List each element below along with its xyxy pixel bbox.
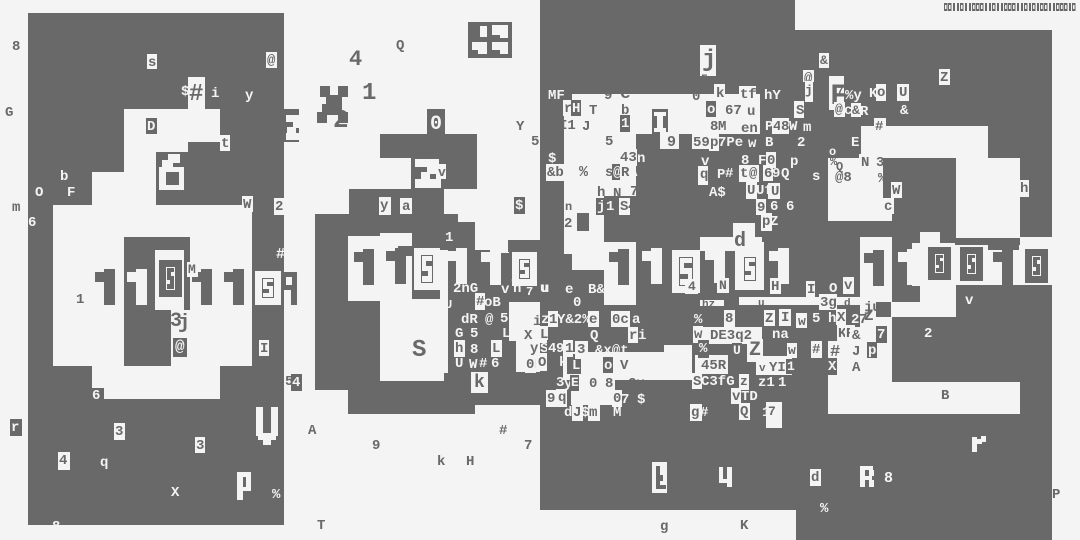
svg-text:9: 9 (372, 438, 380, 454)
svg-text:N: N (213, 249, 221, 265)
svg-text:8: 8 (725, 311, 733, 327)
svg-text:k: k (437, 454, 445, 470)
svg-text:d: d (811, 470, 819, 486)
svg-text:1: 1 (362, 80, 376, 107)
svg-text:B: B (941, 388, 950, 404)
svg-text:#: # (499, 423, 507, 439)
svg-text:2: 2 (333, 105, 349, 135)
svg-text:d: d (734, 230, 746, 253)
svg-text:a: a (402, 199, 411, 215)
svg-text:E: E (571, 375, 579, 390)
svg-text:B&: B& (588, 282, 605, 298)
svg-text:7: 7 (837, 86, 844, 98)
svg-text:W: W (892, 183, 901, 199)
svg-text:A: A (308, 423, 317, 439)
svg-text:$: $ (515, 198, 523, 214)
svg-text:%: % (694, 312, 703, 328)
svg-text:v: v (438, 165, 446, 180)
svg-text:@: @ (267, 53, 276, 69)
svg-text:5: 5 (470, 326, 478, 342)
svg-text:u: u (540, 281, 548, 297)
svg-text:7: 7 (877, 327, 885, 343)
svg-text:v: v (732, 389, 741, 405)
svg-text:k: k (716, 86, 724, 102)
svg-text:8: 8 (605, 376, 613, 392)
svg-text:7: 7 (524, 438, 532, 454)
svg-text:2: 2 (797, 135, 805, 151)
svg-text:M: M (613, 405, 621, 421)
svg-text:Y: Y (516, 119, 525, 135)
svg-text:#: # (276, 246, 285, 263)
svg-text:&: & (852, 328, 861, 344)
svg-text:e: e (620, 84, 631, 104)
svg-text:59: 59 (693, 135, 710, 151)
svg-text:X: X (837, 310, 846, 326)
svg-text:p: p (790, 154, 798, 170)
svg-text:G: G (455, 326, 463, 342)
svg-text:Q: Q (740, 404, 748, 420)
svg-text:v: v (965, 293, 974, 309)
svg-text:z1: z1 (758, 375, 775, 391)
svg-text:43: 43 (620, 150, 637, 166)
svg-text:I: I (260, 341, 268, 357)
svg-text:DE3q2: DE3q2 (710, 328, 752, 344)
svg-text:MF: MF (548, 88, 565, 104)
svg-text:&x@t: &x@t (595, 343, 629, 359)
svg-text:1: 1 (76, 292, 84, 308)
svg-text:3: 3 (196, 438, 204, 454)
svg-text:R: R (860, 104, 869, 120)
svg-text:Y&2%: Y&2% (557, 312, 591, 328)
svg-text:d: d (844, 298, 851, 310)
svg-text:O: O (538, 355, 546, 371)
svg-text:E: E (851, 135, 859, 151)
svg-text:j: j (597, 199, 605, 215)
svg-text:9: 9 (667, 134, 676, 151)
svg-text:#: # (479, 356, 487, 372)
svg-text:w: w (798, 314, 806, 329)
svg-text:5: 5 (531, 134, 539, 150)
svg-text:Z: Z (940, 70, 948, 86)
svg-text:ju: ju (864, 300, 881, 316)
svg-text:5: 5 (500, 311, 508, 327)
svg-text:1: 1 (606, 199, 614, 215)
svg-text:6: 6 (786, 199, 794, 215)
svg-text:m: m (803, 120, 811, 136)
svg-text:t: t (221, 136, 229, 152)
svg-text:c: c (565, 152, 573, 168)
svg-text:4: 4 (628, 199, 636, 215)
svg-text:i: i (637, 200, 645, 216)
svg-text:0: 0 (430, 113, 442, 136)
svg-text:W: W (469, 357, 478, 373)
svg-text:7Pe: 7Pe (718, 135, 743, 151)
svg-text:0: 0 (589, 376, 597, 392)
svg-text:%: % (878, 171, 887, 187)
svg-text:g: g (660, 519, 668, 535)
svg-text:&: & (900, 103, 909, 119)
svg-text:G: G (5, 105, 13, 121)
svg-text:1: 1 (621, 116, 629, 132)
svg-text:p: p (868, 343, 876, 359)
svg-text:7: 7 (630, 184, 638, 200)
svg-text:en: en (741, 121, 758, 137)
svg-text:X: X (171, 485, 180, 501)
svg-text:j: j (178, 312, 190, 335)
svg-text:&: & (820, 53, 828, 68)
svg-text:%: % (708, 342, 716, 356)
svg-text:r: r (629, 328, 637, 344)
svg-text:0: 0 (692, 89, 700, 105)
svg-text:L: L (572, 358, 580, 374)
svg-text:hz: hz (702, 299, 715, 311)
svg-text:8: 8 (52, 519, 60, 535)
svg-text:Cx: Cx (628, 376, 645, 392)
svg-text:m: m (12, 200, 20, 216)
svg-text:z: z (740, 374, 748, 389)
svg-text:g: g (691, 405, 699, 421)
svg-text:r: r (716, 217, 724, 233)
svg-text:U: U (899, 85, 907, 101)
svg-text:I: I (807, 282, 815, 298)
svg-text:U: U (771, 184, 779, 200)
svg-text:v: v (759, 363, 766, 375)
svg-text:%y: %y (845, 88, 862, 104)
svg-text:%: % (699, 341, 708, 357)
svg-text:2: 2 (275, 199, 283, 215)
svg-text:s: s (812, 169, 820, 185)
svg-text:b: b (60, 169, 68, 185)
svg-text:S: S (412, 337, 426, 364)
svg-text:D: D (147, 119, 155, 135)
svg-text:n: n (637, 151, 645, 167)
svg-text:6: 6 (491, 356, 499, 372)
svg-text:4: 4 (59, 453, 67, 469)
svg-text:C3fG: C3fG (701, 374, 735, 390)
svg-text:t: t (740, 166, 748, 182)
svg-text:': ' (521, 278, 528, 292)
svg-text:j: j (702, 47, 716, 74)
svg-text:5: 5 (605, 134, 613, 150)
svg-text:X: X (828, 359, 837, 375)
svg-text:v: v (844, 278, 853, 294)
svg-text:s: s (148, 55, 156, 71)
svg-text:L: L (492, 341, 500, 357)
svg-text:i: i (638, 328, 646, 344)
svg-text:S: S (796, 103, 804, 119)
svg-text:M: M (718, 119, 726, 135)
svg-text:O: O (35, 185, 43, 201)
svg-text:N: N (861, 155, 869, 171)
svg-text:2nG: 2nG (453, 281, 478, 297)
svg-text:45R: 45R (701, 358, 727, 374)
svg-text:d: d (564, 405, 572, 421)
svg-text:3g: 3g (820, 295, 837, 311)
svg-text:1: 1 (778, 375, 786, 391)
svg-text:o: o (707, 102, 715, 118)
svg-text:Z: Z (765, 311, 773, 327)
svg-text:8: 8 (470, 342, 478, 358)
svg-text:M: M (188, 262, 196, 277)
svg-text:N: N (719, 278, 727, 293)
svg-text:u: u (747, 104, 755, 120)
svg-text:1: 1 (445, 230, 453, 246)
svg-text:@: @ (175, 338, 185, 356)
svg-text:A$: A$ (709, 185, 726, 201)
svg-text:#: # (725, 166, 733, 182)
svg-text:J: J (852, 344, 860, 360)
svg-text:h: h (828, 311, 836, 327)
svg-text:F: F (701, 74, 708, 86)
svg-text:3: 3 (876, 155, 884, 171)
svg-text:na: na (772, 327, 789, 343)
svg-text:%: % (272, 487, 281, 503)
svg-text:U: U (445, 298, 452, 312)
svg-text:u: u (758, 298, 765, 310)
svg-text:k: k (559, 355, 567, 371)
svg-text:U: U (747, 183, 755, 199)
svg-text:4: 4 (292, 375, 300, 391)
svg-text:h: h (1020, 181, 1028, 197)
svg-text:T: T (589, 103, 597, 119)
svg-text:a: a (632, 312, 641, 328)
svg-text:$: $ (637, 392, 645, 408)
svg-text:i: i (211, 86, 219, 102)
svg-text:0: 0 (573, 295, 581, 311)
svg-text:W: W (243, 197, 252, 213)
svg-text:e: e (589, 312, 597, 328)
svg-text:4: 4 (688, 279, 696, 294)
svg-text:1: 1 (787, 359, 795, 374)
svg-text:k: k (474, 373, 485, 393)
svg-text:@: @ (835, 102, 843, 117)
svg-text:K: K (740, 518, 749, 534)
svg-text:Z: Z (749, 339, 761, 362)
svg-text:w: w (788, 343, 796, 358)
svg-text:Q: Q (590, 328, 598, 344)
svg-text:hY: hY (764, 88, 781, 104)
svg-text:q: q (558, 390, 566, 406)
svg-text:B: B (765, 135, 774, 151)
svg-text:&: & (852, 103, 860, 118)
svg-text:2: 2 (564, 216, 572, 232)
svg-text:V: V (629, 216, 638, 232)
svg-text:%: % (579, 164, 589, 181)
svg-text:U: U (733, 343, 741, 358)
svg-text:3: 3 (577, 342, 585, 358)
svg-text:P: P (1052, 487, 1060, 503)
svg-text:q: q (700, 167, 708, 183)
svg-text:Z: Z (770, 214, 778, 230)
svg-text:TD: TD (741, 389, 758, 405)
svg-text:%: % (820, 501, 829, 517)
svg-text:6: 6 (28, 215, 36, 231)
svg-text:#: # (812, 342, 820, 358)
svg-text:#: # (700, 405, 708, 421)
svg-text:67: 67 (725, 103, 742, 119)
svg-text:H: H (771, 279, 779, 295)
svg-text:U: U (455, 356, 463, 372)
svg-text:9: 9 (772, 166, 780, 182)
svg-text:H: H (466, 454, 474, 470)
svg-text:o: o (877, 85, 885, 101)
svg-text:J: J (582, 119, 590, 135)
svg-text:7: 7 (621, 392, 629, 408)
svg-text:m: m (589, 405, 597, 421)
svg-text:9: 9 (604, 88, 612, 104)
svg-text:r: r (11, 420, 19, 436)
svg-text:c: c (884, 199, 892, 215)
svg-text:0: 0 (526, 357, 534, 373)
svg-text:9: 9 (547, 391, 555, 407)
svg-text:#: # (189, 81, 203, 108)
svg-text:@8: @8 (835, 170, 852, 186)
svg-text:q: q (100, 455, 108, 471)
svg-text:L: L (502, 326, 510, 342)
svg-text:H: H (572, 101, 580, 117)
svg-text:I: I (781, 310, 789, 326)
svg-text:F: F (67, 185, 75, 201)
svg-text:h: h (455, 341, 463, 357)
svg-text:I1: I1 (559, 118, 576, 134)
svg-text:y: y (245, 88, 254, 104)
svg-text:2: 2 (924, 326, 932, 342)
svg-text:T: T (317, 518, 325, 534)
svg-text:5: 5 (812, 311, 820, 327)
svg-text:E: E (53, 247, 61, 263)
svg-text:3: 3 (115, 424, 123, 440)
svg-text:oB: oB (484, 295, 501, 311)
svg-text:': ' (509, 278, 516, 292)
svg-text:y: y (380, 198, 389, 214)
svg-text:Q: Q (781, 166, 789, 182)
svg-text:W: W (789, 119, 798, 135)
svg-text:0c: 0c (612, 312, 629, 328)
svg-text:6: 6 (92, 388, 100, 404)
svg-text:8: 8 (12, 39, 20, 55)
svg-text:n: n (565, 200, 572, 214)
svg-text:A: A (852, 360, 861, 376)
svg-text:8: 8 (884, 470, 893, 487)
svg-text:6: 6 (770, 199, 778, 215)
svg-text:tf: tf (740, 87, 757, 103)
svg-text:@: @ (749, 166, 758, 182)
svg-text:j: j (805, 83, 813, 98)
svg-text:Q: Q (396, 38, 404, 54)
svg-text:7: 7 (768, 404, 776, 419)
svg-text:o: o (604, 358, 612, 374)
svg-text:@: @ (485, 312, 494, 328)
svg-text:A: A (629, 165, 638, 181)
svg-text:V: V (620, 358, 629, 374)
svg-text:&b: &b (547, 165, 564, 181)
svg-text:w: w (748, 136, 757, 152)
svg-text:4: 4 (349, 47, 362, 72)
svg-text:#: # (875, 119, 883, 135)
